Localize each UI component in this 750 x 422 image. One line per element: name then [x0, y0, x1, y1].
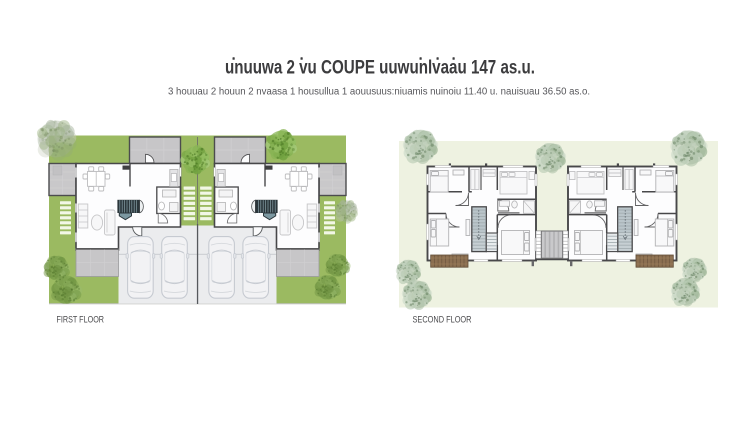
svg-text:3 houuau 2 houun 2 nvaasa 1: 3 houuau 2 houun 2 nvaasa 1 housullua 1 … [168, 86, 590, 97]
svg-text:SECOND FLOOR: SECOND FLOOR [413, 313, 472, 324]
svg-text:unuuwa 2 vu COUPE uuwunlvaau 1: unuuwa 2 vu COUPE uuwunlvaau 147 as.u. [225, 58, 535, 79]
svg-text:FIRST FLOOR: FIRST FLOOR [57, 313, 105, 324]
